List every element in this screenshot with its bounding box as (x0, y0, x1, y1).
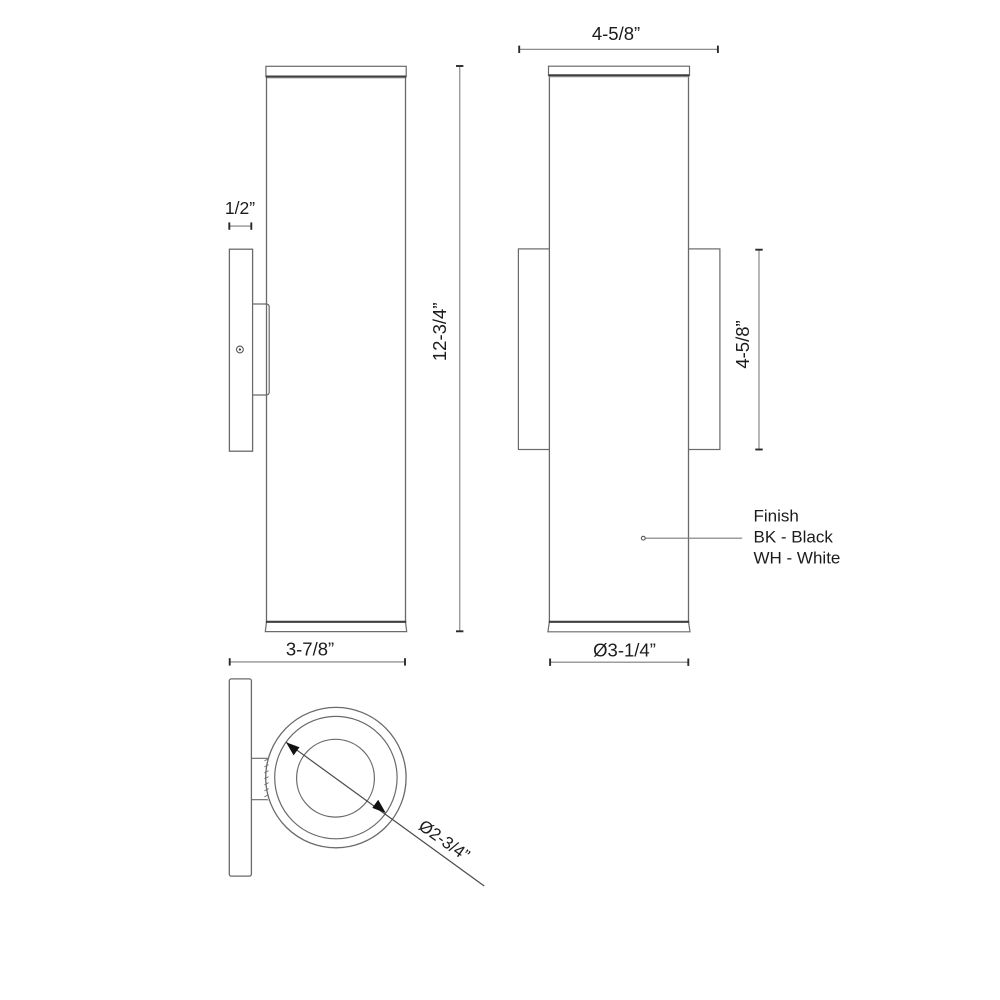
svg-text:Finish: Finish (754, 507, 799, 526)
svg-text:4-5/8”: 4-5/8” (592, 23, 640, 44)
svg-text:Ø3-1/4”: Ø3-1/4” (593, 640, 656, 661)
svg-text:12-3/4”: 12-3/4” (429, 302, 450, 361)
svg-text:3-7/8”: 3-7/8” (286, 639, 334, 660)
svg-text:4-5/8”: 4-5/8” (732, 320, 753, 368)
svg-text:1/2”: 1/2” (225, 198, 255, 218)
svg-text:BK - Black: BK - Black (754, 527, 834, 546)
svg-text:WH - White: WH - White (754, 549, 841, 568)
